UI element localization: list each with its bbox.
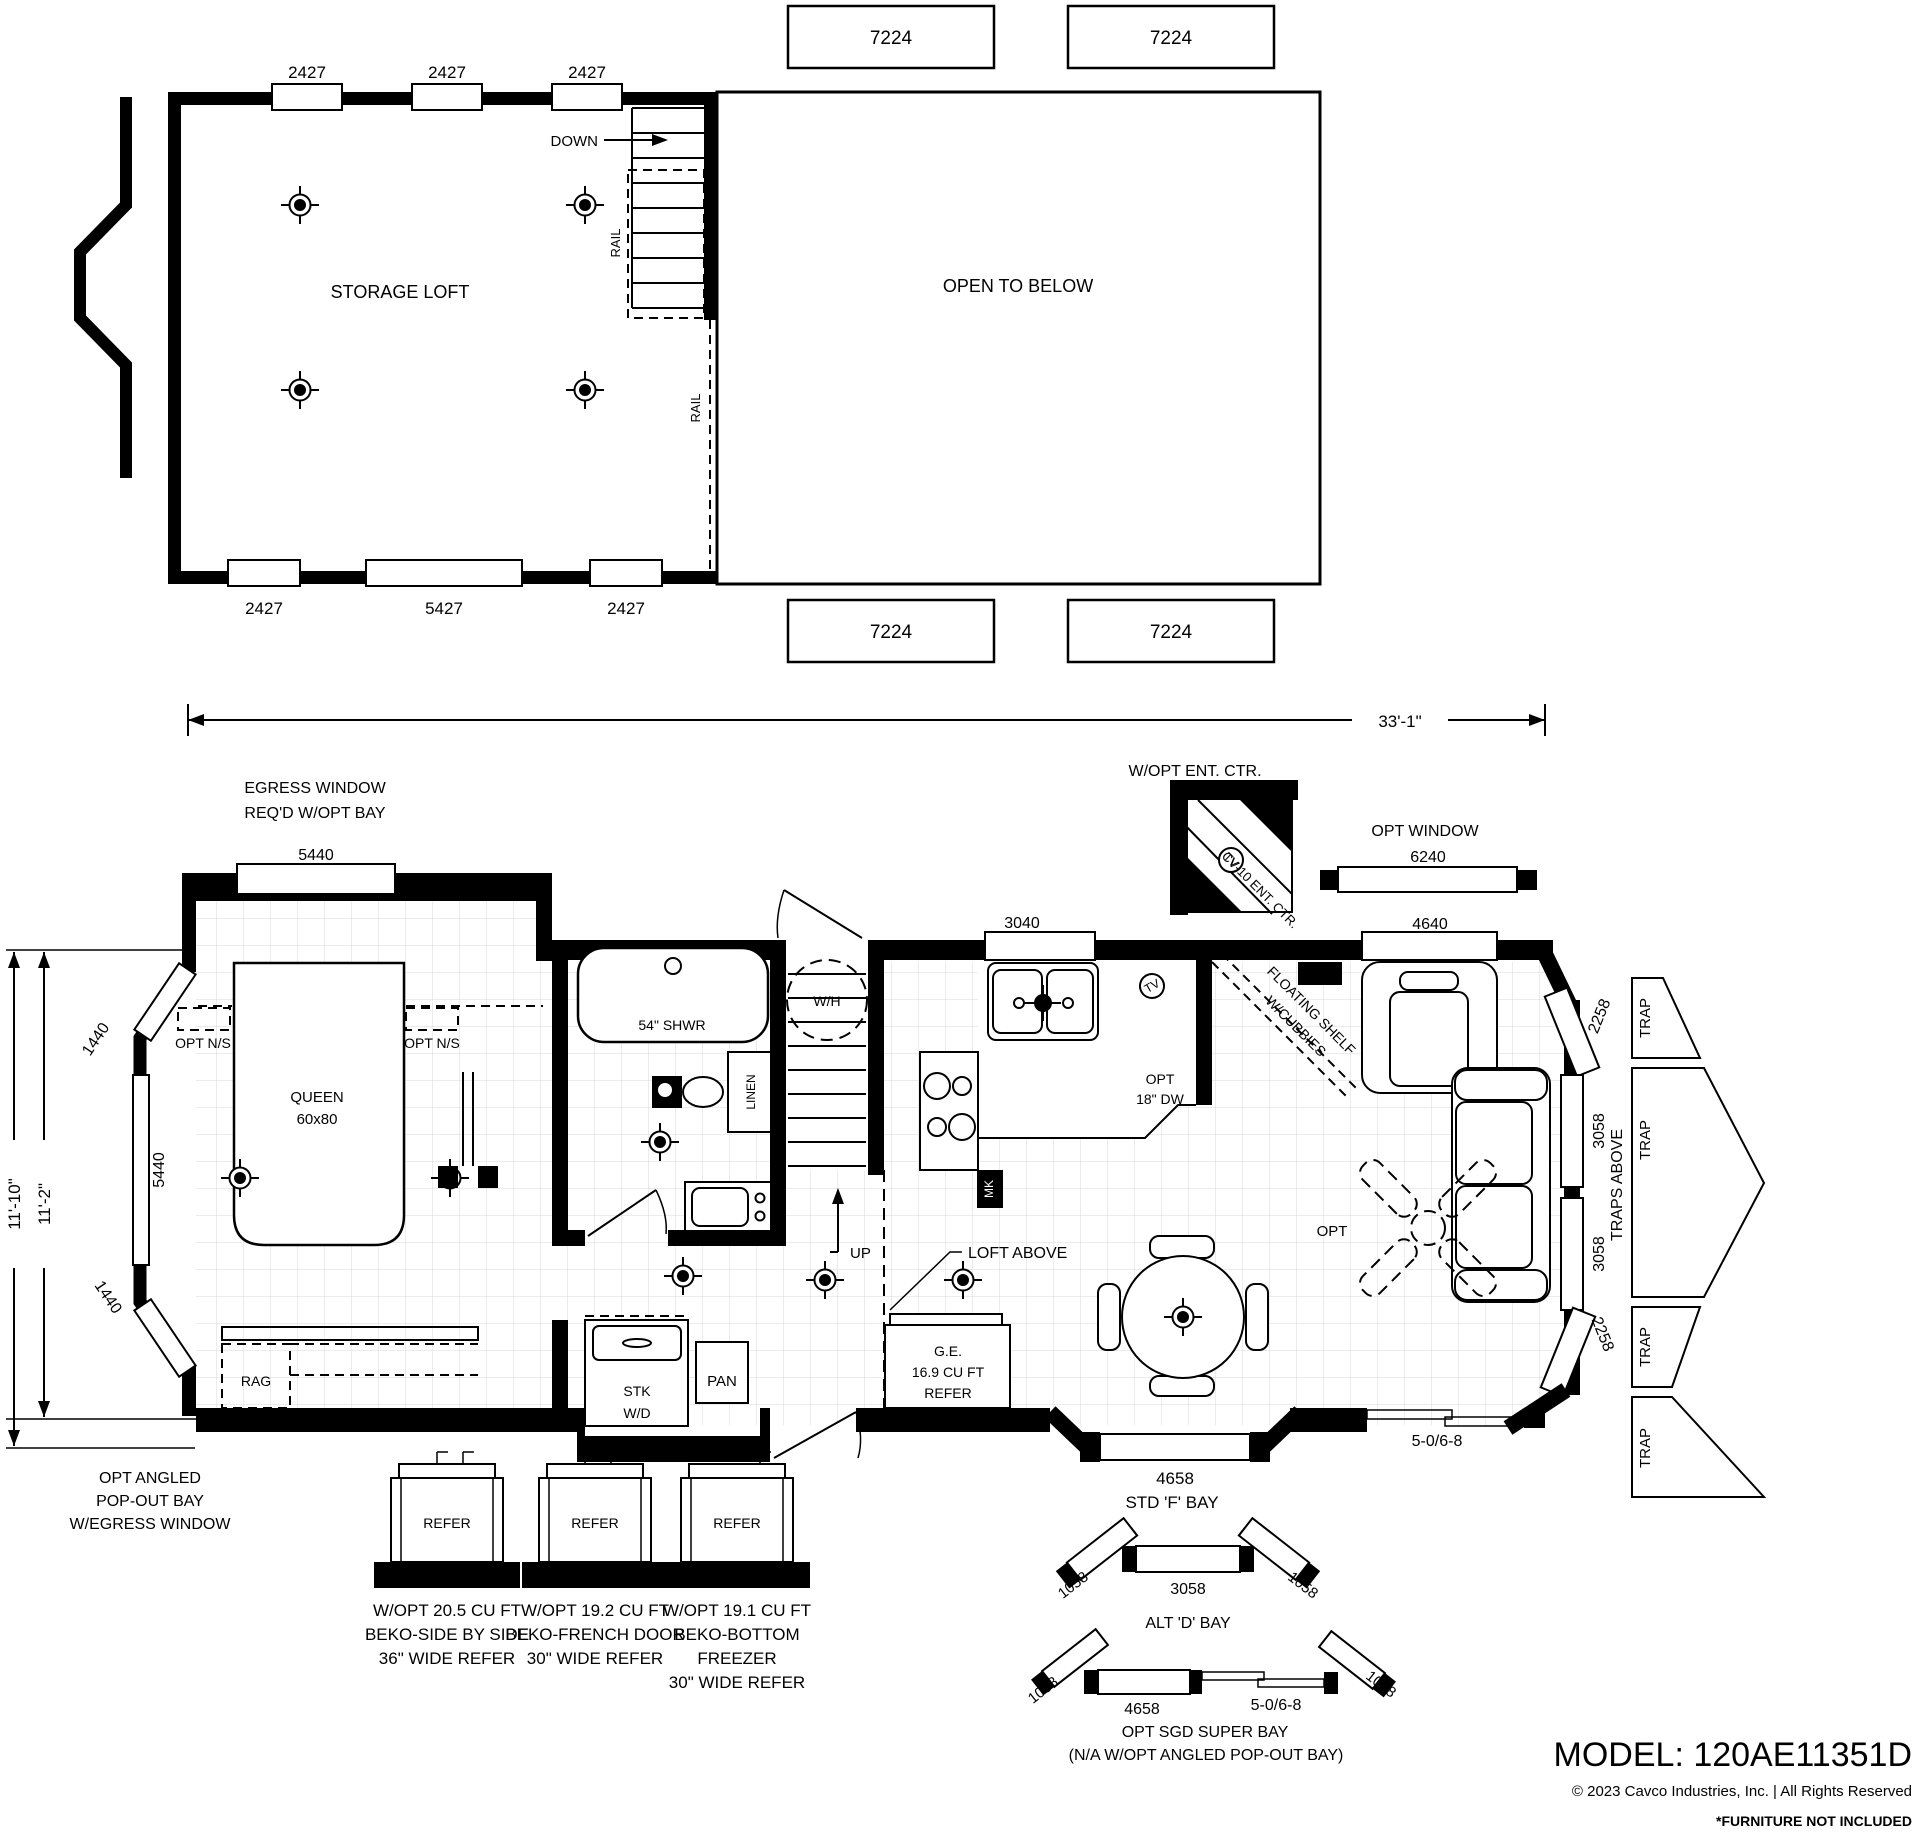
refer-option-label: BEKO-BOTTOM bbox=[674, 1625, 799, 1644]
loft-window-2427 bbox=[552, 84, 622, 110]
refer-label: G.E. bbox=[934, 1343, 962, 1359]
overall-width-dimension: 33'-1" bbox=[188, 704, 1545, 736]
super-bay-window-4658 bbox=[1098, 1670, 1190, 1694]
bay-dim-label: 4658 bbox=[1124, 1701, 1160, 1718]
water-heater-label: W/H bbox=[813, 993, 840, 1009]
dining-chair bbox=[1098, 1284, 1120, 1350]
stacked-washer-dryer: STK W/D bbox=[585, 1320, 688, 1426]
bed-label: QUEEN bbox=[290, 1089, 343, 1106]
pantry-label: PAN bbox=[707, 1373, 737, 1390]
window-dim-label: 3058 bbox=[1591, 1113, 1608, 1149]
model-number: MODEL: 120AE11351D bbox=[1554, 1736, 1912, 1774]
top-wall bbox=[1095, 940, 1362, 960]
nightstand-label: OPT N/S bbox=[175, 1035, 231, 1051]
front-door-swing bbox=[777, 890, 862, 938]
window-dim-label: 5427 bbox=[425, 599, 463, 618]
bed-label: 60x80 bbox=[297, 1111, 338, 1128]
window-dim-label: 3040 bbox=[1004, 915, 1040, 932]
stair-wall-right bbox=[868, 940, 884, 1175]
dining-chair bbox=[1150, 1236, 1214, 1258]
loft-above-label: LOFT ABOVE bbox=[968, 1245, 1067, 1262]
super-bay-option: 1058 1058 4658 5-0/6-8 OPT SGD SUPER BAY… bbox=[1025, 1629, 1399, 1764]
storage-loft-label: STORAGE LOFT bbox=[331, 282, 470, 302]
loft-window-5427 bbox=[366, 560, 522, 586]
window-dim-label: 7224 bbox=[870, 28, 913, 49]
mk-label: MK bbox=[982, 1180, 996, 1198]
top-wall bbox=[868, 940, 985, 960]
bottom-wall bbox=[1290, 1408, 1367, 1432]
refer-option-label: BEKO-FRENCH DOOR bbox=[505, 1625, 684, 1644]
dining-chair bbox=[1150, 1376, 1214, 1396]
popout-note: POP-OUT BAY bbox=[96, 1493, 204, 1510]
window-3058-bottom bbox=[1561, 1198, 1583, 1310]
super-bay-label: (N/A W/OPT ANGLED POP-OUT BAY) bbox=[1069, 1747, 1344, 1764]
bay-window-1440-bottom bbox=[134, 1299, 195, 1377]
window-dim-label: 2427 bbox=[245, 599, 283, 618]
linen-label: LINEN bbox=[744, 1074, 758, 1109]
svg-text:RAIL: RAIL bbox=[688, 394, 703, 423]
dishwasher-label: OPT bbox=[1146, 1071, 1175, 1087]
rag-label: RAG bbox=[241, 1373, 271, 1389]
refrigerator-options: REFER W/OPT 20.5 CU FT BEKO-SIDE BY SIDE… bbox=[365, 1452, 811, 1692]
stair-rail-dashed bbox=[628, 170, 704, 318]
open-to-below-label: OPEN TO BELOW bbox=[943, 276, 1093, 296]
stk-wd-label: W/D bbox=[623, 1405, 650, 1421]
shower-label: 54" SHWR bbox=[638, 1017, 705, 1033]
popout-note: OPT ANGLED bbox=[99, 1470, 201, 1487]
wall-step bbox=[536, 873, 552, 961]
down-label: DOWN bbox=[551, 133, 599, 150]
bay-dim-label: 4658 bbox=[1156, 1469, 1194, 1488]
height-dim-label: 11'-2" bbox=[35, 1183, 54, 1225]
ceiling-light-icon bbox=[281, 371, 319, 409]
bay-window-1440-top bbox=[134, 963, 195, 1041]
opt-window-6240 bbox=[1320, 867, 1537, 892]
left-wall bbox=[182, 873, 196, 972]
furniture-note: *FURNITURE NOT INCLUDED bbox=[1716, 1813, 1912, 1829]
window-3058-top bbox=[1561, 1075, 1583, 1187]
loft-window-2427 bbox=[228, 560, 300, 586]
bottom-wall bbox=[196, 1408, 583, 1432]
alt-d-bay-option: 1058 3058 1058 ALT 'D' BAY bbox=[1055, 1518, 1321, 1632]
toilet-bowl bbox=[683, 1077, 723, 1107]
refer-label: REFER bbox=[924, 1385, 971, 1401]
refer-option-label: W/OPT 19.1 CU FT bbox=[663, 1601, 811, 1620]
bay-window-5440 bbox=[133, 1075, 149, 1265]
bottom-wall bbox=[856, 1408, 1050, 1432]
range bbox=[920, 1052, 978, 1170]
window-dim-label: 4640 bbox=[1412, 916, 1448, 933]
bay-dim-label: 3058 bbox=[1170, 1581, 1206, 1598]
alt-bay-label: ALT 'D' BAY bbox=[1145, 1615, 1231, 1632]
refer-option-label: W/OPT 20.5 CU FT bbox=[373, 1601, 521, 1620]
refer-label: 16.9 CU FT bbox=[912, 1364, 985, 1380]
trap-label: TRAP bbox=[1637, 1428, 1654, 1468]
ceiling-light-icon bbox=[566, 371, 604, 409]
loft-popout-bay-outline bbox=[80, 97, 126, 478]
traps-above-label: TRAPS ABOVE bbox=[1609, 1129, 1626, 1241]
wall-stub bbox=[1298, 962, 1342, 985]
window-dim-label: 2427 bbox=[607, 599, 645, 618]
bay-dim-label: 5-0/6-8 bbox=[1251, 1697, 1302, 1714]
egress-window-5440 bbox=[237, 864, 395, 894]
window-dim-label: 2427 bbox=[428, 63, 466, 82]
bath-wall-left bbox=[552, 940, 568, 1245]
ceiling-light-icon bbox=[566, 186, 604, 224]
egress-note: EGRESS WINDOW bbox=[244, 780, 386, 797]
ent-ctr-note: W/OPT ENT. CTR. bbox=[1128, 763, 1261, 780]
refer-option-2: REFER W/OPT 19.2 CU FT BEKO-FRENCH DOOR … bbox=[505, 1452, 684, 1668]
refer-option-label: 30" WIDE REFER bbox=[669, 1673, 805, 1692]
refer-tag: REFER bbox=[713, 1515, 760, 1531]
window-dim-label: 1440 bbox=[79, 1020, 113, 1059]
kitchen-window-3040 bbox=[985, 932, 1095, 960]
bay-dim-label: 1058 bbox=[1362, 1667, 1399, 1701]
trap-label: TRAP bbox=[1637, 1120, 1654, 1160]
trap-panels: TRAP TRAP TRAP TRAP bbox=[1632, 978, 1764, 1497]
window-dim-label: 5440 bbox=[151, 1152, 168, 1188]
window-dim-label: 7224 bbox=[870, 622, 913, 643]
refrigerator-ge: G.E. 16.9 CU FT REFER bbox=[885, 1314, 1010, 1408]
window-dim-label: 7224 bbox=[1150, 28, 1193, 49]
sgd-label: 5-0/6-8 bbox=[1412, 1433, 1463, 1450]
ceiling-light-icon bbox=[281, 186, 319, 224]
window-dim-label: 2427 bbox=[288, 63, 326, 82]
loft-wall-left bbox=[168, 92, 181, 584]
refer-tag: REFER bbox=[423, 1515, 470, 1531]
corner-ent-center-option: TV CV-10 ENT. CTR. bbox=[1170, 780, 1301, 931]
rail-label: RAIL bbox=[688, 394, 703, 423]
loft-window-2427 bbox=[412, 84, 482, 110]
kitchen-wall-stub bbox=[1196, 958, 1212, 1105]
overall-width-label: 33'-1" bbox=[1378, 712, 1421, 731]
refer-option-label: 36" WIDE REFER bbox=[379, 1649, 515, 1668]
living-window-4640 bbox=[1362, 932, 1497, 960]
alt-bay-window-3058 bbox=[1136, 1546, 1240, 1572]
floorplan-drawing: 7224 7224 7224 7224 OPEN TO BELOW 2427 2… bbox=[0, 0, 1920, 1835]
window-dim-label: 5440 bbox=[298, 847, 334, 864]
window-dim-label: 1440 bbox=[91, 1278, 125, 1317]
window-dim-label: 2258 bbox=[1585, 997, 1614, 1036]
stair-wall-left bbox=[770, 940, 786, 1230]
svg-text:RAIL: RAIL bbox=[608, 229, 623, 258]
loft-plan: 7224 7224 7224 7224 OPEN TO BELOW 2427 2… bbox=[80, 6, 1320, 662]
rail-label: RAIL bbox=[608, 229, 623, 258]
window-dim-label: 6240 bbox=[1410, 849, 1446, 866]
main-plan: 33'-1" EGRESS WINDOW REQ'D W/OPT BAY 544… bbox=[5, 704, 1764, 1533]
bottom-wall-bump bbox=[577, 1436, 768, 1462]
trap-label: TRAP bbox=[1637, 998, 1654, 1038]
down-arrow-icon bbox=[652, 134, 668, 146]
refer-option-label: 30" WIDE REFER bbox=[527, 1649, 663, 1668]
window-dim-label: 7224 bbox=[1150, 622, 1193, 643]
up-label: UP bbox=[850, 1245, 871, 1262]
nightstand-label: OPT N/S bbox=[404, 1035, 460, 1051]
open-to-below-area bbox=[717, 92, 1320, 584]
egress-note: REQ'D W/OPT BAY bbox=[244, 805, 385, 822]
bay-label: STD 'F' BAY bbox=[1125, 1493, 1218, 1512]
window-dim-label: 2258 bbox=[1588, 1315, 1617, 1354]
refer-option-label: W/OPT 19.2 CU FT bbox=[521, 1601, 669, 1620]
std-f-bay: 4658 STD 'F' BAY bbox=[1050, 1412, 1300, 1512]
trap-label: TRAP bbox=[1637, 1327, 1654, 1367]
sofa bbox=[1452, 1068, 1550, 1302]
refer-option-3: REFER W/OPT 19.1 CU FT BEKO-BOTTOM FREEZ… bbox=[663, 1452, 811, 1692]
loft-window-2427 bbox=[590, 560, 662, 586]
window-dim-label: 3058 bbox=[1591, 1236, 1608, 1272]
dishwasher-label: 18" DW bbox=[1136, 1091, 1185, 1107]
height-dim-label: 11'-10" bbox=[5, 1178, 24, 1230]
stk-wd-label: STK bbox=[623, 1383, 651, 1399]
title-block: MODEL: 120AE11351D © 2023 Cavco Industri… bbox=[1554, 1736, 1912, 1829]
fan-opt-label: OPT bbox=[1317, 1223, 1348, 1240]
popout-note: W/EGRESS WINDOW bbox=[70, 1516, 232, 1533]
floorplan-sheet: 7224 7224 7224 7224 OPEN TO BELOW 2427 2… bbox=[0, 0, 1920, 1835]
bath-sink bbox=[692, 1188, 748, 1226]
loft-wall-right bbox=[704, 92, 717, 320]
pantry: PAN bbox=[696, 1342, 748, 1403]
refer-option-label: FREEZER bbox=[697, 1649, 776, 1668]
copyright: © 2023 Cavco Industries, Inc. | All Righ… bbox=[1572, 1783, 1912, 1800]
super-bay-label: OPT SGD SUPER BAY bbox=[1122, 1724, 1289, 1741]
opt-window-note: OPT WINDOW bbox=[1371, 823, 1479, 840]
dining-chair bbox=[1246, 1284, 1268, 1350]
refer-tag: REFER bbox=[571, 1515, 618, 1531]
loft-window-2427 bbox=[272, 84, 342, 110]
window-dim-label: 2427 bbox=[568, 63, 606, 82]
hall-wall bbox=[552, 1320, 568, 1412]
